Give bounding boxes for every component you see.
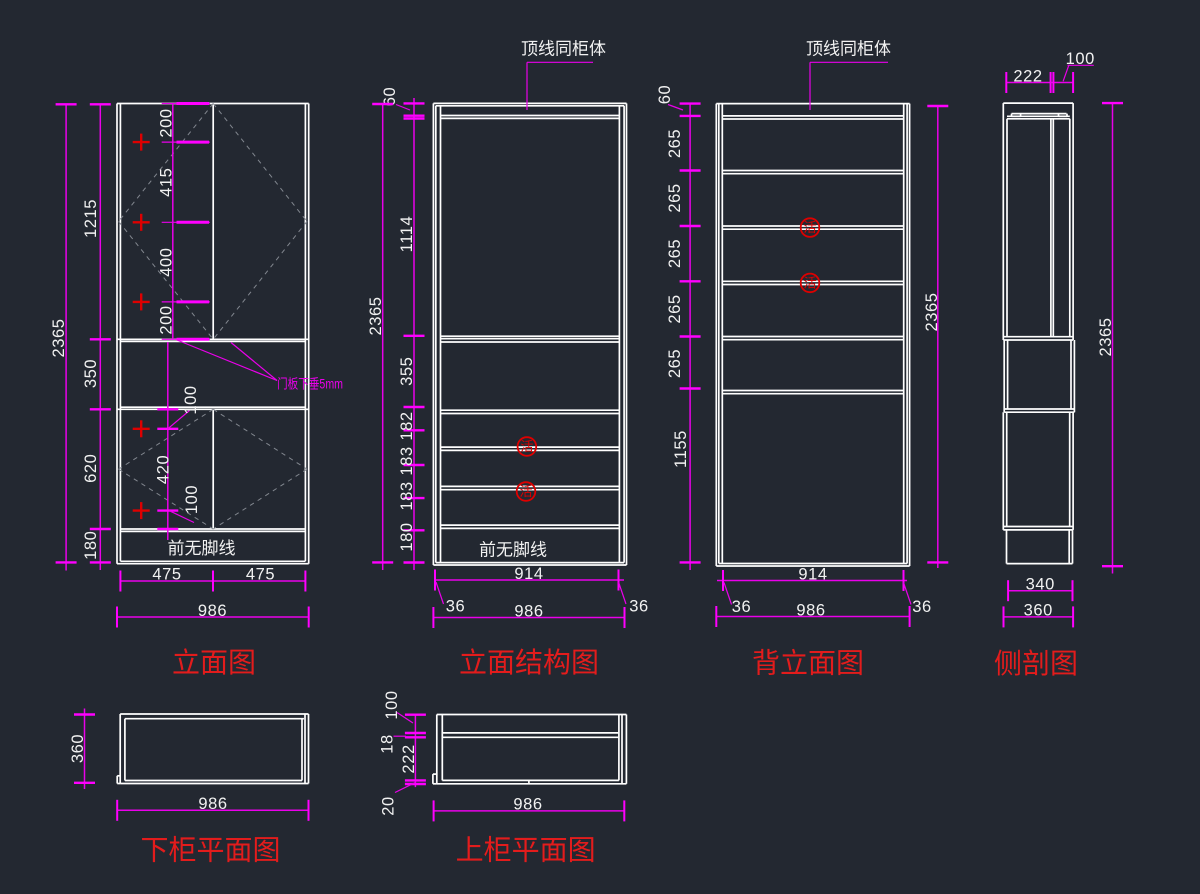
svg-text:20: 20 <box>380 796 398 816</box>
svg-text:222: 222 <box>1013 67 1042 85</box>
svg-text:914: 914 <box>514 565 543 583</box>
svg-text:914: 914 <box>798 565 827 583</box>
svg-text:986: 986 <box>198 795 227 813</box>
svg-text:侧剖图: 侧剖图 <box>994 648 1078 679</box>
svg-text:36: 36 <box>446 598 466 616</box>
svg-text:1215: 1215 <box>82 199 100 238</box>
svg-text:100: 100 <box>182 385 200 414</box>
svg-text:100: 100 <box>1066 50 1095 68</box>
svg-text:180: 180 <box>82 531 100 560</box>
svg-text:986: 986 <box>796 601 825 619</box>
svg-text:2365: 2365 <box>50 318 68 357</box>
svg-text:360: 360 <box>69 734 87 763</box>
svg-text:顶线同柜体: 顶线同柜体 <box>806 40 891 59</box>
svg-text:1114: 1114 <box>398 216 416 253</box>
svg-text:100: 100 <box>183 485 201 514</box>
svg-text:475: 475 <box>152 566 181 584</box>
svg-text:265: 265 <box>666 294 684 323</box>
svg-text:415: 415 <box>158 168 176 197</box>
svg-text:2365: 2365 <box>1097 317 1115 356</box>
svg-text:门板下垂5mm: 门板下垂5mm <box>277 377 343 392</box>
svg-text:200: 200 <box>158 108 176 137</box>
svg-text:2365: 2365 <box>923 292 941 331</box>
svg-text:上柜平面图: 上柜平面图 <box>456 835 596 866</box>
svg-text:前无脚线: 前无脚线 <box>168 539 236 558</box>
svg-text:活: 活 <box>803 220 816 235</box>
svg-text:180: 180 <box>398 522 416 551</box>
svg-text:265: 265 <box>666 239 684 268</box>
svg-text:265: 265 <box>666 183 684 212</box>
svg-text:60: 60 <box>656 85 674 105</box>
svg-text:活: 活 <box>803 275 816 290</box>
svg-text:活: 活 <box>520 439 533 454</box>
svg-text:立面图: 立面图 <box>172 647 256 678</box>
svg-text:360: 360 <box>1024 602 1053 620</box>
svg-text:36: 36 <box>732 598 752 616</box>
svg-text:18: 18 <box>379 734 397 754</box>
svg-text:36: 36 <box>912 598 932 616</box>
svg-text:986: 986 <box>514 602 543 620</box>
svg-text:背立面图: 背立面图 <box>752 648 864 679</box>
svg-text:36: 36 <box>629 598 649 616</box>
svg-text:2365: 2365 <box>367 296 385 335</box>
svg-text:420: 420 <box>155 455 173 484</box>
svg-text:183: 183 <box>398 446 416 475</box>
svg-text:前无脚线: 前无脚线 <box>479 540 547 559</box>
svg-text:活: 活 <box>519 484 532 499</box>
svg-text:355: 355 <box>398 357 416 386</box>
svg-text:340: 340 <box>1026 576 1055 594</box>
svg-text:1155: 1155 <box>672 430 690 468</box>
svg-text:986: 986 <box>513 796 542 814</box>
svg-text:400: 400 <box>158 247 176 276</box>
svg-text:350: 350 <box>82 359 100 388</box>
svg-text:182: 182 <box>398 411 416 440</box>
svg-text:200: 200 <box>158 305 176 334</box>
svg-text:183: 183 <box>398 481 416 510</box>
svg-text:立面结构图: 立面结构图 <box>459 647 599 678</box>
svg-text:222: 222 <box>400 744 418 773</box>
svg-text:265: 265 <box>666 349 684 378</box>
svg-text:下柜平面图: 下柜平面图 <box>140 835 280 866</box>
svg-text:265: 265 <box>666 129 684 158</box>
svg-text:986: 986 <box>198 602 227 620</box>
svg-text:顶线同柜体: 顶线同柜体 <box>521 40 606 59</box>
svg-text:620: 620 <box>82 454 100 483</box>
svg-text:475: 475 <box>246 566 275 584</box>
svg-text:100: 100 <box>383 690 401 719</box>
